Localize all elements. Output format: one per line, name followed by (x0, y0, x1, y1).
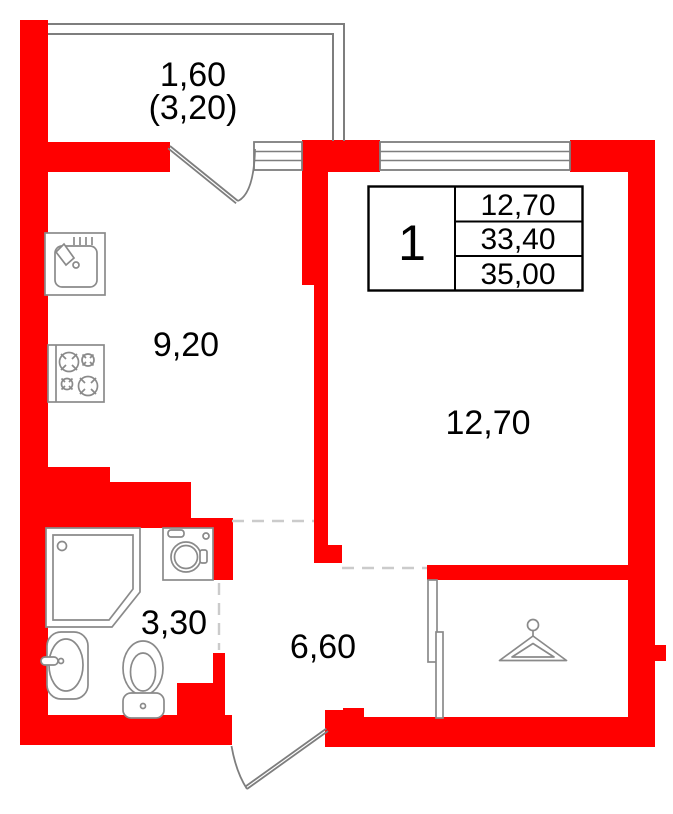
balcony-door-arc (238, 149, 255, 201)
wall-right-notch (655, 645, 666, 661)
wall-bottom-bump (343, 708, 364, 720)
label-hallway-area: 6,60 (290, 628, 356, 666)
wall-kitchen-step-2 (48, 482, 191, 518)
hanger-icon (500, 620, 567, 661)
wall-balcony-bottom (48, 142, 170, 172)
windows (254, 142, 570, 170)
washer-latch (200, 550, 207, 563)
table-row-apartment-area: 33,40 (480, 223, 555, 256)
entrance-door-icon (232, 729, 329, 789)
shower-icon (46, 528, 140, 627)
label-room-area: 12,70 (445, 404, 530, 442)
wall-room-left-upper (302, 172, 328, 285)
wall-left (20, 20, 48, 745)
wardrobe-panel-right (436, 632, 443, 718)
entrance-door-leaf (245, 729, 328, 789)
wall-room-left-lower (314, 285, 328, 563)
table-row-total-area: 35,00 (480, 258, 555, 291)
toilet-bowl-outer (123, 641, 163, 695)
entrance-door-arc (232, 746, 248, 789)
balcony-door-icon (168, 146, 255, 203)
floor-plan-canvas: 1 12,70 33,40 35,00 1,60 (3,20) 9,20 12,… (0, 0, 673, 814)
table-rooms-count: 1 (398, 215, 426, 271)
table-row-living-area: 12,70 (480, 189, 555, 222)
label-bathroom-area: 3,30 (141, 604, 207, 642)
hanger-hook (528, 620, 539, 631)
floor-plan: 1 12,70 33,40 35,00 1,60 (3,20) 9,20 12,… (0, 0, 673, 814)
washing-machine-icon (163, 528, 213, 580)
balcony-door-sidelight (254, 142, 302, 170)
label-balcony-area: (3,20) (149, 89, 238, 127)
toilet-tank (123, 693, 164, 718)
wall-wardrobe-top (427, 565, 628, 580)
wall-bottom-right (325, 717, 655, 747)
room-window (380, 142, 570, 170)
label-kitchen-area: 9,20 (153, 326, 219, 364)
bath-sink-icon (41, 632, 88, 699)
balcony-door-leaf (168, 146, 238, 203)
wardrobe-partitions (428, 580, 443, 718)
info-table: 1 12,70 33,40 35,00 (369, 187, 583, 292)
kitchen-sink-icon (45, 233, 105, 295)
wall-room-left-foot (327, 545, 342, 563)
stove-icon (48, 345, 104, 402)
wall-right (628, 140, 655, 747)
wall-pier-balcony-room (302, 140, 380, 172)
wall-bath-step (177, 683, 225, 715)
bath-sink-faucet (41, 657, 58, 665)
wall-kitchen-step-1 (48, 467, 110, 482)
wall-washer-pillar (213, 518, 233, 580)
wall-bathroom-top (48, 518, 232, 528)
wall-bath-door-pillar (213, 653, 225, 683)
wall-bathroom-bottom (20, 715, 232, 745)
toilet-icon (123, 641, 164, 718)
